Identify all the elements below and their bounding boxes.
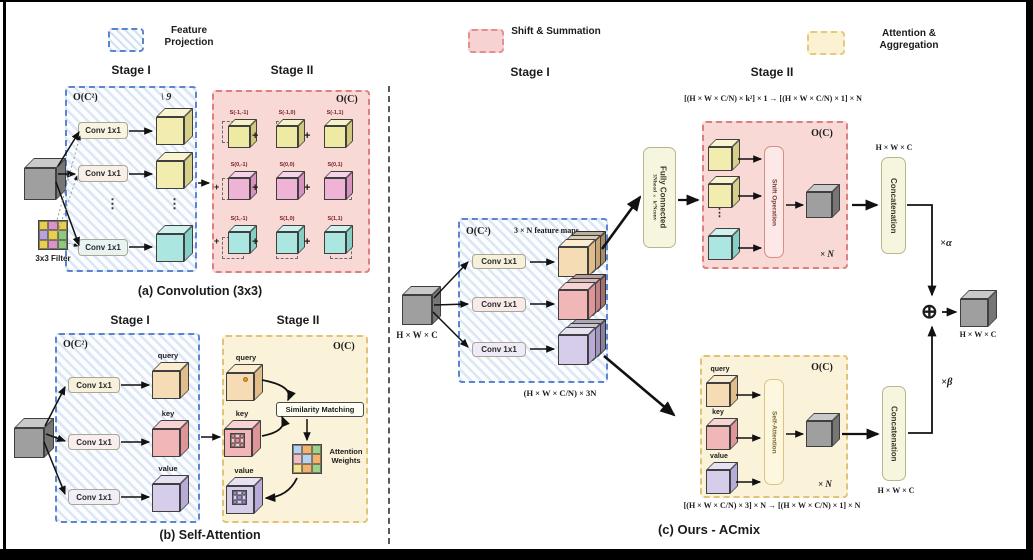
shift-label: S(0,0) [272,162,302,168]
panel-c-stage2-title: Stage II [734,66,810,80]
panel-a-kernel-note: \ 9 [161,92,171,104]
conv-branch-formula: [(H × W × C/N) × k²] × 1 → [(H × W × C/N… [634,94,912,103]
panel-c-conv2: Conv 1x1 [472,297,526,312]
key-pattern-grid [230,433,245,448]
attn-branch-complexity: O(C) [800,362,844,374]
plus-icon: + [252,182,258,194]
stack1-front [558,239,596,277]
attn-branch-times-n: × N [810,479,840,489]
panel-a-conv2: Conv 1x1 [78,165,128,182]
attention-weights-label: Attention Weights [324,448,368,465]
panel-a-stage1-title: Stage I [96,64,166,78]
beta-scale-label: ×β [941,377,952,389]
attention-weights-grid [292,444,322,474]
plus-icon: + [252,236,258,248]
shift-cube [324,119,353,148]
final-output-cube [960,290,997,327]
panel-c-conv3: Conv 1x1 [472,342,526,357]
panel-c-caption: (c) Ours - ACmix [614,523,804,538]
attn-query-cube [706,375,738,407]
panel-b2-key-label: key [224,410,260,419]
attn-query-label: query [702,366,738,374]
shift-cube [276,119,305,148]
conv-branch-complexity: O(C) [800,128,844,140]
shift-label: S(1,0) [272,216,302,222]
legend-shift-summation-swatch [468,29,504,53]
panel-divider [388,86,390,544]
concat-bottom-box: Concatenation [882,386,906,481]
panel-a-conv3: Conv 1x1 [78,239,128,256]
shift-cube [324,171,353,200]
oplus-icon: ⊕ [921,301,938,324]
shift-label: S(-1,-1) [224,110,254,116]
ellipsis-icon: ⋮ [714,206,725,219]
plus-icon: + [304,182,310,194]
panel-b-complexity2: O(C) [333,341,355,353]
panel-b-conv3: Conv 1x1 [68,489,120,505]
panel-b-query-cube [152,362,189,399]
shift-operation-label: Shift Operation [771,179,778,226]
shift-label: S(1,-1) [224,216,254,222]
panel-a-input-cube [24,158,66,200]
frame-left [3,0,6,560]
panel-a-stage2-title: Stage II [252,64,332,78]
panel-b2-value-label: value [226,467,262,476]
fully-connected-sub: 3Nhead × k²Nconv [652,174,658,220]
panel-b-conv1: Conv 1x1 [68,377,120,393]
legend-feature-projection-swatch [108,28,144,52]
panel-a-feature-cube-2 [156,152,193,189]
conv-branch-output-cube [806,184,840,218]
plus-icon: + [304,130,310,142]
final-output-dim: H × W × C [948,330,1008,339]
concat-bottom-label: Concatenation [890,406,899,462]
panel-a-caption: (a) Convolution (3x3) [95,284,305,298]
panel-b-caption: (b) Self-Attention [110,528,310,542]
legend-attention-aggregation-label: Attention & Aggregation [853,28,965,51]
legend-feature-projection-label: Feature Projection [146,25,232,48]
panel-b-complexity1: O(C²) [63,339,88,351]
panel-b-value-cube [152,475,189,512]
conv-branch-times-n: × N [812,249,842,259]
concat-bottom-dim: H × W × C [868,486,924,495]
attn-key-cube [706,418,738,450]
panel-b-conv2: Conv 1x1 [68,434,120,450]
plus-icon: + [304,236,310,248]
frame-bottom [0,549,1033,560]
panel-b-key-cube [152,420,189,457]
panel-a-complexity1: O(C²) [73,92,98,104]
attn-key-label: key [702,409,734,417]
self-attention-box: Self-Attention [764,379,784,485]
shift-cube [324,225,353,254]
attn-branch-formula: [(H × W × C/N) × 3] × N → [(H × W × C/N)… [640,501,904,510]
panel-b-value-label: value [148,465,188,474]
value-pattern-grid [232,490,247,505]
panel-a-feature-cube-1 [156,108,193,145]
query-dot [243,377,248,382]
shift-label: S(-1,1) [320,110,350,116]
panel-b2-query-cube [226,364,263,401]
panel-c-stage1-title: Stage I [494,66,566,80]
attn-value-label: value [700,453,738,461]
ellipsis-icon: ⋮ [168,196,181,212]
panel-c-conv1: Conv 1x1 [472,254,526,269]
shift-label: S(0,1) [320,162,350,168]
attn-branch-output-cube [806,413,840,447]
panel-b-stage1-title: Stage I [94,314,166,328]
panel-a-complexity2: O(C) [336,94,358,106]
conv-branch-cube-1 [708,139,740,171]
filter-3x3-icon [38,220,68,250]
panel-c-complexity1: O(C²) [466,226,491,238]
stack3-front [558,327,596,365]
concat-top-label: Concatenation [889,178,898,234]
alpha-scale-label: ×α [940,238,952,250]
shift-label: S(-1,0) [272,110,302,116]
panel-b-input-cube [14,418,54,458]
attn-value-cube [706,462,738,494]
shift-operation-box: Shift Operation [764,146,784,258]
panel-c-stage1-out-dim: (H × W × C/N) × 3N [505,389,615,399]
panel-b-query-label: query [148,352,188,361]
shift-cube [276,225,305,254]
panel-a-filter-label: 3x3 Filter [22,254,84,263]
panel-a-conv1: Conv 1x1 [78,122,128,139]
panel-c-input-cube [402,286,441,325]
concat-top-dim: H × W × C [866,143,922,152]
panel-a-feature-cube-3 [156,225,193,262]
plus-icon: + [252,130,258,142]
panel-b2-query-label: query [228,354,264,363]
frame-right [1026,0,1033,560]
similarity-matching-box: Similarity Matching [276,402,364,417]
plus-icon: + [214,236,219,246]
frame-top [0,0,1033,2]
stack2-front [558,282,596,320]
plus-icon: + [214,182,219,192]
shift-label: S(0,-1) [224,162,254,168]
panel-b-key-label: key [150,410,186,419]
shift-label: S(1,1) [320,216,350,222]
legend-shift-summation-label: Shift & Summation [508,26,604,38]
panel-c-input-dim: H × W × C [388,330,446,340]
conv-branch-cube-2 [708,176,740,208]
legend-attention-aggregation-swatch [807,31,845,55]
fully-connected-box: 3Nhead × k²Nconv Fully Connected [643,147,676,248]
ellipsis-icon: ⋮ [106,196,119,212]
conv-branch-cube-3 [708,228,740,260]
shift-cube [276,171,305,200]
panel-b-stage2-title: Stage II [258,314,338,328]
concat-top-box: Concatenation [881,157,906,254]
self-attention-label: Self-Attention [771,411,778,454]
fully-connected-label: Fully Connected [659,166,668,228]
